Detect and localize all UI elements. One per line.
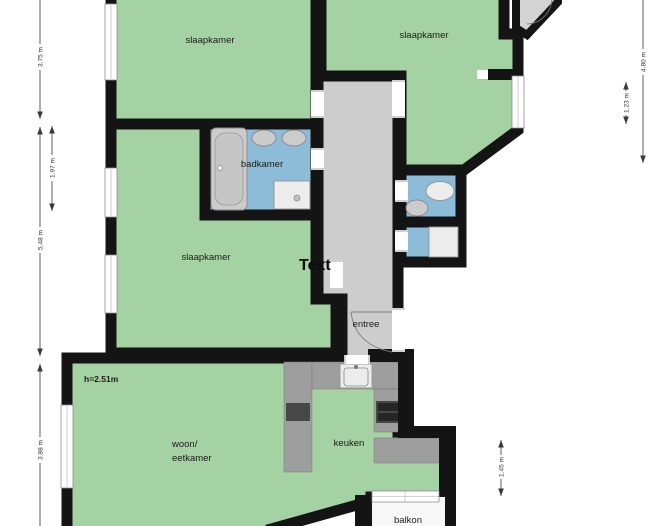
washer: [429, 227, 458, 257]
svg-text:3.75 m: 3.75 m: [38, 47, 45, 67]
dimension-right-bottom: 1.45 m: [498, 440, 506, 496]
label-ceiling-height: h=2.51m: [84, 374, 119, 384]
window-bedroom-top-right: [512, 76, 524, 128]
shower-drain: [294, 195, 300, 201]
bathroom-sink-left: [252, 130, 276, 146]
label-bedroom-top-right: slaapkamer: [399, 30, 448, 41]
window-bedroom-left-lower: [105, 255, 117, 313]
door-hall-bathroom: [311, 148, 324, 170]
floorplan-canvas: slaapkamer slaapkamer slaapkamer badkame…: [0, 0, 658, 526]
window-living-room: [61, 405, 73, 488]
svg-text:5.48 m: 5.48 m: [38, 230, 45, 250]
room-bedroom-top-left: [111, 0, 316, 124]
door-hall-bedroom-left: [330, 260, 343, 290]
dimension-right-top: 4.80 m: [640, 0, 648, 163]
label-kitchen: keuken: [334, 438, 365, 449]
dimension-left-bottom: 3.88 m: [37, 364, 45, 526]
dimension-left-inner: 1.97 m: [49, 126, 57, 211]
wall-balcony-stub: [355, 495, 373, 526]
svg-text:1.23 m: 1.23 m: [624, 93, 631, 113]
door-hall-kitchen-opening: [344, 355, 370, 364]
door-hall-bedroom-top-right: [392, 80, 405, 118]
label-hall: entree: [353, 319, 380, 330]
oven-appliance: [286, 403, 310, 421]
svg-text:1.45 m: 1.45 m: [499, 457, 506, 477]
floorplan-page: slaapkamer slaapkamer slaapkamer badkame…: [0, 0, 658, 526]
door-hall-bedroom-top-left: [311, 90, 324, 118]
dimension-left-middle: 5.48 m: [37, 127, 45, 356]
svg-text:3.88 m: 3.88 m: [38, 440, 45, 460]
window-bedroom-top-left: [105, 4, 117, 80]
opening-bay: [477, 70, 488, 79]
window-bedroom-left-upper: [105, 168, 117, 217]
room-stairwell-porch: [516, 0, 558, 35]
wc-sink: [406, 200, 428, 216]
toilet: [426, 182, 454, 201]
label-bathroom: badkamer: [241, 159, 283, 170]
bathroom-sink-right: [282, 130, 306, 146]
label-balcony: balkon: [394, 515, 422, 526]
kitchen-counter-bottom-right: [374, 438, 445, 463]
label-bedroom-top-left: slaapkamer: [185, 35, 234, 46]
label-living-line2: eetkamer: [172, 453, 212, 464]
label-living-line1: woon/: [171, 439, 198, 450]
bathtub-faucet: [218, 166, 223, 171]
dimension-right-top-inner: 1.23 m: [623, 82, 631, 124]
svg-text:1.97 m: 1.97 m: [50, 158, 57, 178]
kitchen-faucet: [354, 365, 358, 369]
label-text-placeholder: Text: [299, 257, 331, 274]
wall-kitchen-right-upper: [398, 349, 414, 437]
svg-text:4.80 m: 4.80 m: [641, 52, 648, 72]
label-bedroom-left: slaapkamer: [181, 252, 230, 263]
shower: [274, 181, 310, 209]
door-hall-wc: [395, 180, 408, 202]
dimension-left-top: 3.75 m: [37, 0, 45, 119]
door-hall-utility: [395, 230, 408, 252]
